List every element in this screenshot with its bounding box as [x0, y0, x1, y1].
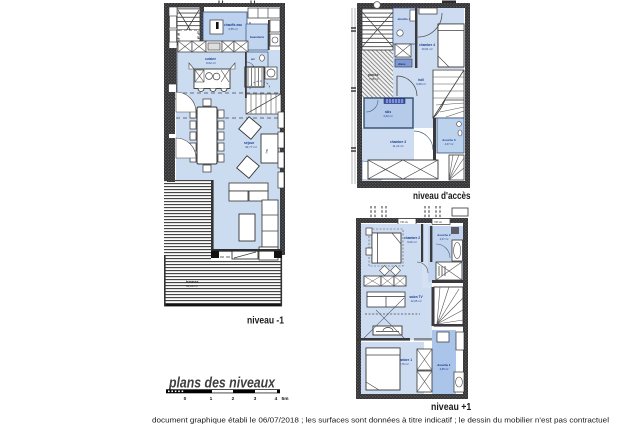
svg-text:9,76 m²: 9,76 m²: [399, 362, 409, 366]
svg-text:9,06 m²: 9,06 m²: [407, 240, 417, 244]
svg-text:7,96 m²: 7,96 m²: [369, 77, 379, 81]
svg-text:plans des niveaux: plans des niveaux: [168, 376, 276, 392]
svg-text:niveau d'accès: niveau d'accès: [413, 191, 471, 202]
svg-text:2: 2: [232, 396, 235, 402]
svg-text:36,90 m²: 36,90 m²: [186, 284, 198, 288]
svg-text:3,55 m²: 3,55 m²: [228, 27, 238, 31]
svg-text:wc: wc: [250, 57, 255, 61]
svg-text:fley: fley: [265, 149, 269, 154]
svg-text:10,91 m²: 10,91 m²: [421, 47, 432, 51]
svg-text:0: 0: [184, 396, 187, 402]
svg-text:niveau -1: niveau -1: [247, 316, 284, 327]
svg-text:buanderie: buanderie: [250, 35, 265, 39]
svg-text:douche 2: douche 2: [437, 233, 451, 237]
svg-text:4,65 m²: 4,65 m²: [440, 367, 449, 371]
svg-text:douche 1: douche 1: [437, 363, 451, 367]
svg-text:4,07 m²: 4,07 m²: [445, 142, 454, 146]
svg-text:VR vlx: VR vlx: [434, 220, 443, 224]
svg-text:4: 4: [275, 396, 278, 402]
svg-text:1: 1: [210, 396, 213, 402]
svg-text:douche 4: douche 4: [398, 17, 411, 21]
svg-text:dress: dress: [398, 62, 406, 66]
svg-text:12,05 m²: 12,05 m²: [410, 299, 421, 303]
svg-text:9,68 m²: 9,68 m²: [416, 82, 426, 86]
svg-text:VR vlx: VR vlx: [400, 220, 409, 224]
svg-text:document graphique établi le 0: document graphique établi le 06/07/2018 …: [152, 416, 609, 425]
svg-text:11,24 m²: 11,24 m²: [393, 144, 404, 148]
svg-text:4,62 m²: 4,62 m²: [383, 114, 393, 118]
svg-text:42,77 m²: 42,77 m²: [245, 145, 257, 149]
svg-text:douche 3: douche 3: [442, 138, 456, 142]
svg-text:5m: 5m: [282, 396, 289, 402]
svg-text:4,07 m²: 4,07 m²: [440, 237, 449, 241]
svg-text:3: 3: [254, 396, 257, 402]
svg-text:niveau +1: niveau +1: [431, 402, 472, 413]
svg-text:9,02 m²: 9,02 m²: [206, 61, 216, 65]
